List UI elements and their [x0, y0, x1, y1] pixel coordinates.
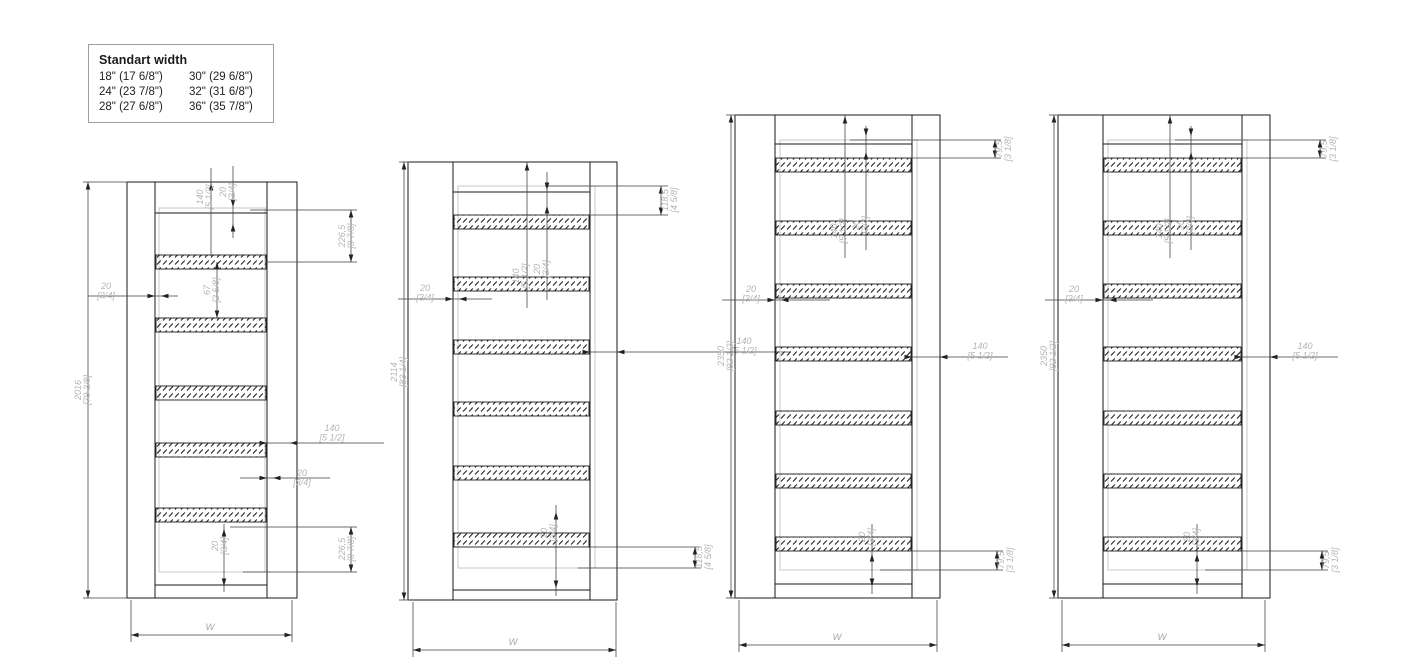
dimension-arrow	[870, 579, 875, 587]
door-drawing-3: 2350[92 1/2]W79,5[3 1/8]140[5 1/2]20[3/4…	[716, 115, 1015, 652]
dimension-arrow	[349, 527, 354, 535]
louver-band	[1104, 347, 1241, 361]
dimension-arrow	[1195, 554, 1200, 562]
dimension-arrow	[349, 255, 354, 263]
dimension-arrow	[1195, 579, 1200, 587]
dimension-arrow	[1052, 591, 1057, 599]
dimension-arrow	[864, 129, 869, 137]
dimension-arrow	[349, 210, 354, 218]
louver-band	[776, 158, 911, 172]
legend-item: 30" (29 6/8")	[189, 71, 263, 83]
dimension-label: 2114[83 1/4]	[389, 356, 408, 388]
dimension-arrow	[1062, 643, 1070, 648]
dimension-label: 140[5 1/2]	[318, 423, 345, 443]
dimension-arrow	[161, 294, 169, 299]
dimension-label: 20[3/4]	[218, 183, 237, 202]
louver-band	[454, 215, 589, 229]
dimension-arrow	[729, 115, 734, 123]
louver-band	[1104, 158, 1241, 172]
dimension-arrow	[617, 350, 625, 355]
dimension-arrow	[870, 554, 875, 562]
dimension-label: 20[3/4]	[292, 468, 311, 488]
dimension-arrow	[1168, 116, 1173, 124]
dimension-arrow	[402, 162, 407, 170]
dimension-arrow	[285, 633, 293, 638]
louver-band	[454, 466, 589, 480]
louver-band	[454, 340, 589, 354]
louver-band	[156, 443, 266, 457]
louver-band	[776, 284, 911, 298]
dimension-arrow	[349, 565, 354, 573]
dimension-arrow	[402, 593, 407, 601]
louver-band	[156, 255, 266, 269]
dimension-arrow	[290, 441, 298, 446]
louver-band	[776, 474, 911, 488]
door-reveal-outline	[458, 186, 595, 568]
dimension-label: 2350[92 1/2]	[716, 340, 735, 372]
dimension-label: 140[5 1/2]	[1291, 341, 1318, 361]
dimension-arrow	[1096, 298, 1104, 303]
dimension-arrow	[222, 529, 227, 537]
dimension-arrow	[459, 297, 467, 302]
drawing-canvas: 2016[79 3/8]W140[5 1/2]20[3/4]226,5[8 7/…	[0, 0, 1401, 670]
dimension-arrow	[729, 591, 734, 599]
dimension-label: 226,5[8 7/8]	[337, 536, 356, 563]
door-drawing-1: 2016[79 3/8]W140[5 1/2]20[3/4]226,5[8 7/…	[73, 166, 384, 642]
louver-band	[156, 318, 266, 332]
dimension-arrow	[545, 206, 550, 214]
legend-item: 36" (35 7/8")	[189, 101, 263, 113]
dimension-label: 226,5[8 7/8]	[337, 223, 356, 250]
dimension-arrow	[843, 116, 848, 124]
louver-band	[1104, 474, 1241, 488]
dimension-arrow	[446, 297, 454, 302]
dimension-arrow	[609, 648, 617, 653]
dimension-arrow	[525, 163, 530, 171]
dimension-label: 20[3/4]	[210, 537, 229, 556]
door-drawing-4: 2350[92 1/2]W79,5[3 1/8]140[5 1/2]20[3/4…	[1039, 115, 1340, 652]
dimension-label: 20[3/4]	[96, 281, 115, 301]
louver-band	[776, 537, 911, 551]
dimension-label: 20[3/4]	[415, 283, 434, 303]
louver-band	[776, 347, 911, 361]
dimension-arrow	[940, 355, 948, 360]
dimension-arrow	[930, 643, 938, 648]
dimension-label: 140[5 1/2]	[966, 341, 993, 361]
dimension-arrow	[273, 476, 281, 481]
louver-band	[156, 508, 266, 522]
legend-item: 32" (31 6/8")	[189, 86, 263, 98]
dimension-arrow	[1189, 129, 1194, 137]
louver-band	[454, 533, 589, 547]
dimension-label: W	[833, 632, 843, 643]
door-drawing-2: 2114[83 1/4]W118,5[4 5/8]140[5 1/2]20[3/…	[389, 162, 790, 657]
dimension-arrow	[864, 152, 869, 160]
louver-band	[1104, 411, 1241, 425]
dimension-arrow	[554, 581, 559, 589]
dimension-arrow	[413, 648, 421, 653]
dimension-label: W	[509, 637, 519, 648]
louver-band	[454, 402, 589, 416]
dimension-arrow	[1258, 643, 1266, 648]
dimension-arrow	[86, 182, 91, 190]
louver-band	[156, 386, 266, 400]
dimension-arrow	[260, 476, 268, 481]
legend-title: Standart width	[99, 53, 263, 67]
dimension-arrow	[1189, 152, 1194, 160]
dimension-label: 118,5[4 5/8]	[660, 187, 679, 214]
dimension-arrow	[739, 643, 747, 648]
dimension-arrow	[1270, 355, 1278, 360]
dimension-arrow	[86, 591, 91, 599]
dimension-arrow	[554, 512, 559, 520]
dimension-label: W	[206, 622, 216, 633]
legend-item: 24" (23 7/8")	[99, 86, 173, 98]
dimension-arrow	[768, 298, 776, 303]
dimension-arrow	[1052, 115, 1057, 123]
dimension-label: 2350[92 1/2]	[1039, 340, 1058, 372]
dimension-arrow	[131, 633, 139, 638]
louver-band	[1104, 537, 1241, 551]
dimension-label: 140[5 1/2]	[195, 184, 214, 211]
dimension-arrow	[215, 311, 220, 319]
legend-grid: 18" (17 6/8") 30" (29 6/8") 24" (23 7/8"…	[99, 71, 263, 113]
louver-band	[776, 411, 911, 425]
dimension-label: 118,5[4 5/8]	[694, 544, 713, 571]
dimension-arrow	[148, 294, 156, 299]
dimension-label: 20[3/4]	[1064, 284, 1083, 304]
louver-band	[1104, 284, 1241, 298]
dimension-label: 20[3/4]	[741, 284, 760, 304]
legend-item: 28" (27 6/8")	[99, 101, 173, 113]
dimension-label: 20[3/4]	[532, 260, 551, 279]
standard-width-legend: Standart width 18" (17 6/8") 30" (29 6/8…	[88, 44, 274, 123]
dimension-arrow	[231, 224, 236, 232]
dimension-label: 67[2 5/8]	[202, 277, 221, 304]
dimension-label: W	[1158, 632, 1168, 643]
legend-item: 18" (17 6/8")	[99, 71, 173, 83]
dimension-label: 2016[79 3/8]	[73, 374, 92, 406]
